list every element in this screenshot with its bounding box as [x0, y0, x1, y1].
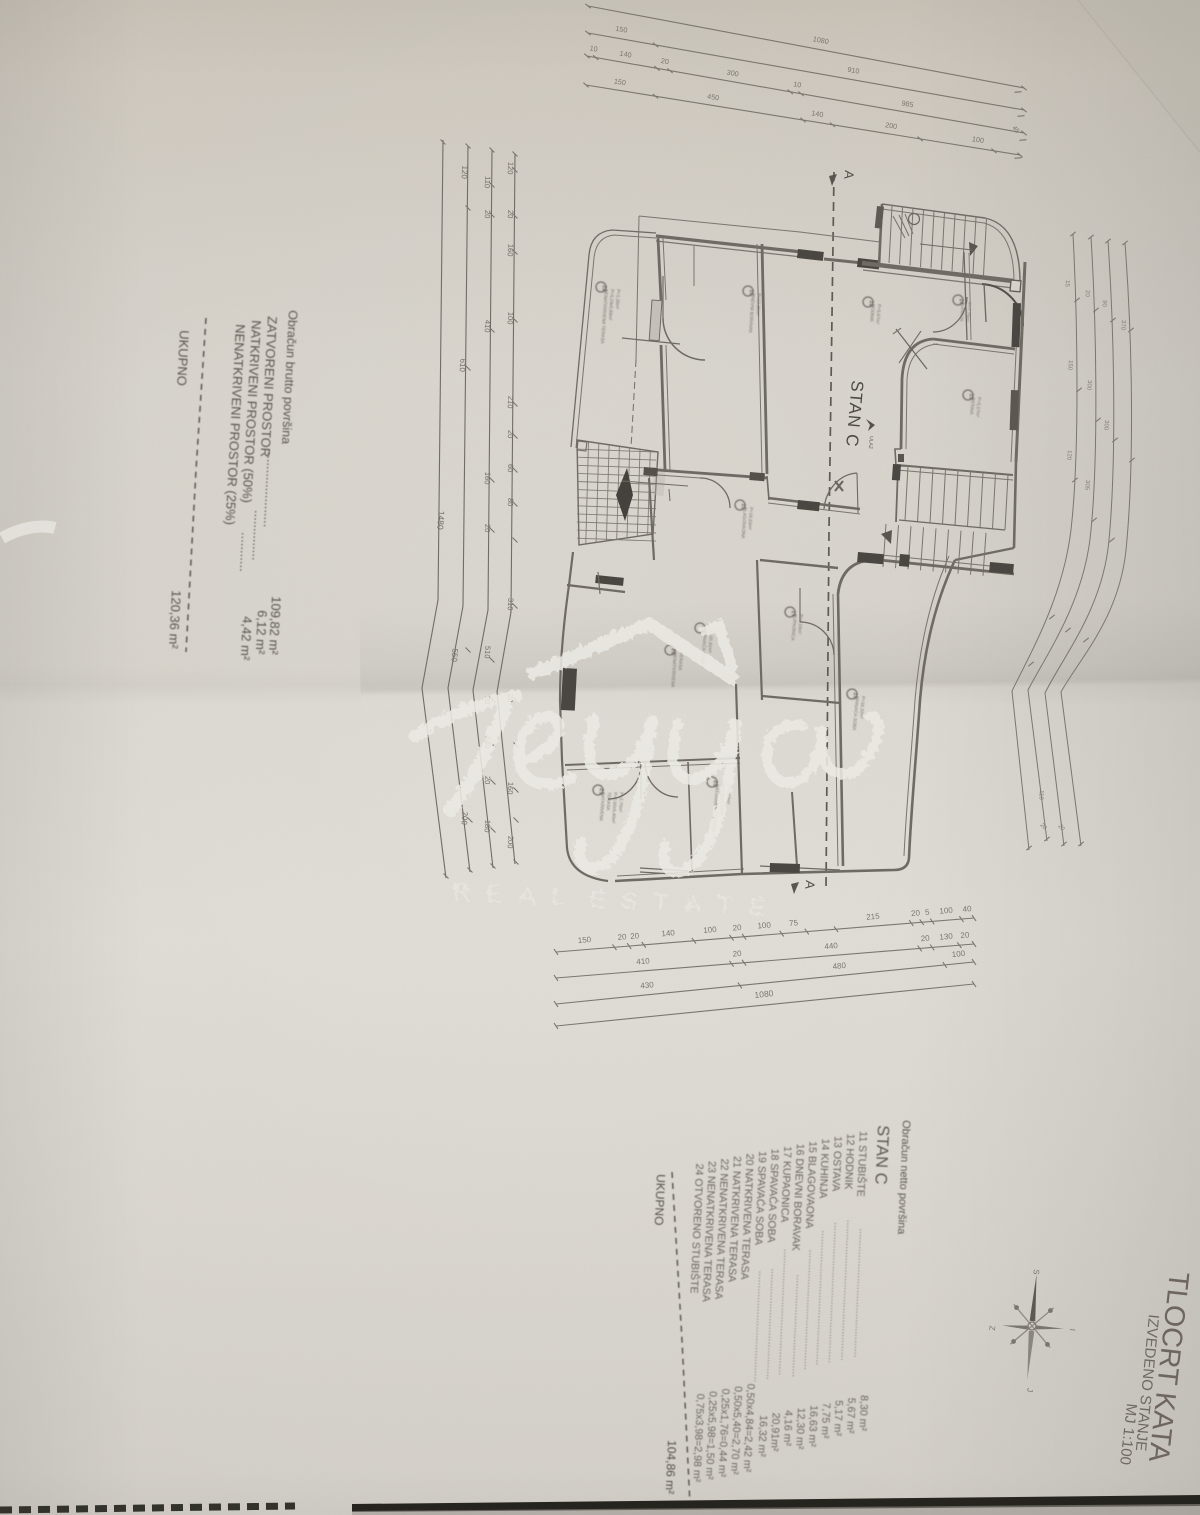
svg-text:150: 150	[1066, 360, 1073, 371]
svg-text:A: A	[517, 880, 534, 908]
svg-text:12,30 m²: 12,30 m²	[793, 1407, 807, 1450]
svg-text:100: 100	[703, 925, 718, 935]
svg-text:410: 410	[483, 320, 493, 333]
svg-text:305: 305	[1083, 480, 1090, 491]
svg-text:4,16 m²: 4,16 m²	[781, 1410, 795, 1447]
svg-text:5,17 m²: 5,17 m²	[831, 1400, 845, 1437]
svg-text:480: 480	[832, 961, 847, 971]
svg-text:10: 10	[793, 79, 802, 89]
svg-text:20,91m²: 20,91m²	[768, 1412, 782, 1452]
svg-text:5,67 m²: 5,67 m²	[844, 1397, 858, 1434]
svg-text:150: 150	[577, 935, 592, 945]
svg-text:370: 370	[1119, 320, 1126, 331]
svg-text:110: 110	[483, 176, 493, 189]
svg-text:100: 100	[951, 949, 966, 959]
svg-text:450: 450	[707, 92, 720, 103]
svg-text:20: 20	[630, 931, 640, 941]
svg-text:60: 60	[506, 464, 516, 473]
svg-text:20: 20	[1083, 290, 1089, 298]
svg-text:A: A	[683, 889, 700, 917]
svg-text:T: T	[715, 890, 731, 918]
svg-text:...........: ...........	[237, 532, 254, 572]
svg-text:160: 160	[506, 244, 516, 257]
svg-text:20: 20	[506, 210, 516, 219]
svg-text:80: 80	[506, 498, 516, 507]
svg-text:120,36 m²: 120,36 m²	[166, 590, 184, 650]
svg-text:150: 150	[613, 76, 626, 87]
svg-text:120: 120	[460, 165, 470, 179]
svg-text:140: 140	[661, 928, 676, 938]
svg-text:15: 15	[1063, 280, 1069, 288]
svg-text:104,86 m²: 104,86 m²	[663, 1440, 679, 1495]
svg-text:300: 300	[1085, 380, 1092, 391]
svg-text:610: 610	[458, 358, 468, 372]
svg-text:75: 75	[789, 918, 799, 928]
svg-text:430: 430	[640, 980, 655, 990]
svg-text:510: 510	[483, 646, 493, 659]
svg-text:10: 10	[589, 43, 598, 53]
svg-text:200: 200	[885, 120, 898, 131]
svg-text:20: 20	[483, 210, 493, 219]
svg-text:440: 440	[824, 941, 839, 951]
svg-text:20: 20	[660, 56, 669, 66]
svg-text:STAN C: STAN C	[871, 1125, 892, 1185]
svg-text:20: 20	[506, 430, 516, 439]
svg-text:130: 130	[939, 932, 954, 942]
svg-text:20: 20	[732, 923, 742, 933]
svg-text:120: 120	[1065, 450, 1072, 461]
svg-text:A: A	[841, 170, 857, 180]
svg-text:UKUPNO: UKUPNO	[174, 330, 192, 386]
svg-text:UKUPNO: UKUPNO	[652, 1174, 668, 1226]
svg-text:E: E	[587, 884, 604, 912]
svg-text:20: 20	[617, 932, 627, 942]
svg-text:300: 300	[1102, 420, 1109, 431]
svg-text:100: 100	[971, 134, 984, 145]
svg-text:20: 20	[920, 934, 930, 944]
svg-text:1080: 1080	[754, 988, 774, 1000]
svg-text:20: 20	[732, 949, 742, 959]
svg-text:160: 160	[483, 472, 493, 485]
svg-text:20: 20	[483, 776, 493, 785]
svg-text:550: 550	[450, 648, 460, 662]
svg-text:160: 160	[506, 782, 516, 795]
svg-text:20: 20	[960, 930, 970, 940]
svg-text:S: S	[619, 886, 636, 914]
svg-text:8,30 m²: 8,30 m²	[856, 1395, 870, 1432]
svg-text:310: 310	[506, 598, 516, 611]
svg-text:120: 120	[506, 162, 516, 175]
svg-text:215: 215	[866, 912, 881, 922]
svg-text:S: S	[1031, 1269, 1041, 1275]
svg-text:1480: 1480	[435, 510, 446, 530]
svg-text:100: 100	[506, 312, 516, 325]
svg-text:A: A	[802, 880, 818, 890]
svg-text:100: 100	[939, 906, 954, 916]
svg-text:16,63 m²: 16,63 m²	[806, 1405, 820, 1448]
svg-text:20: 20	[911, 908, 921, 918]
svg-text:T: T	[651, 887, 667, 915]
svg-text:90: 90	[1100, 300, 1106, 308]
svg-text:7,75 m²: 7,75 m²	[819, 1402, 833, 1439]
svg-text:E: E	[747, 892, 764, 920]
svg-text:100: 100	[757, 920, 772, 930]
svg-text:40: 40	[962, 904, 972, 914]
svg-text:4,42 m²: 4,42 m²	[238, 616, 255, 661]
svg-text:410: 410	[636, 956, 651, 966]
svg-text:140: 140	[811, 108, 824, 119]
svg-text:E: E	[484, 879, 501, 907]
svg-text:20: 20	[483, 524, 493, 533]
svg-text:180: 180	[483, 820, 493, 833]
svg-text:ULAZ: ULAZ	[867, 436, 874, 449]
svg-text:R: R	[451, 877, 470, 905]
svg-text:L: L	[550, 882, 565, 910]
svg-text:210: 210	[506, 396, 516, 409]
svg-text:16,32 m²: 16,32 m²	[755, 1415, 769, 1458]
svg-text:200: 200	[506, 836, 516, 849]
svg-text:200: 200	[460, 811, 470, 825]
svg-text:110: 110	[1037, 790, 1044, 801]
